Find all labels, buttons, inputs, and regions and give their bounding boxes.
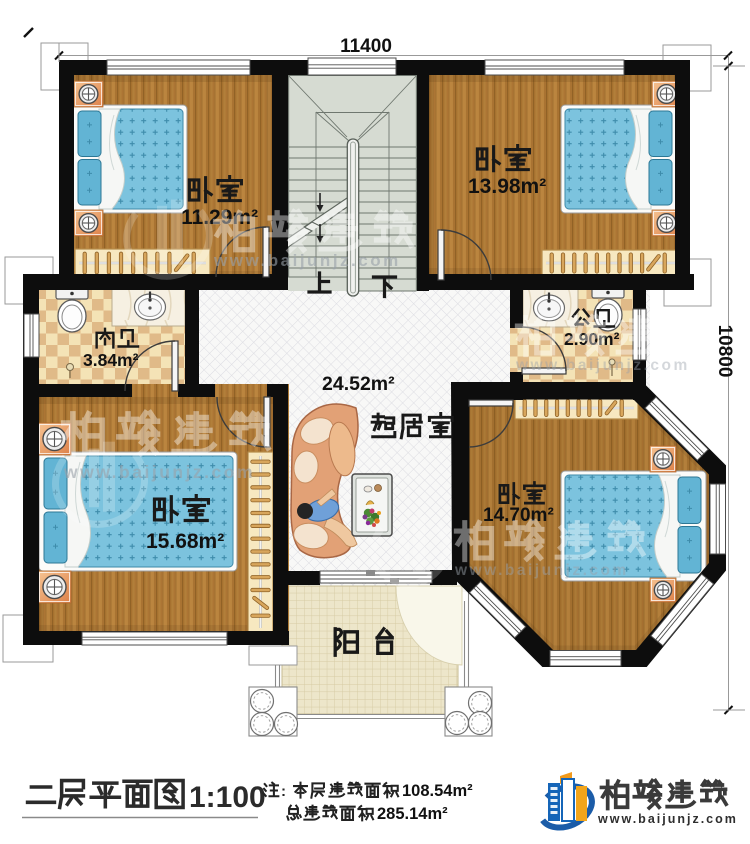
svg-text:1:100: 1:100 xyxy=(189,781,266,814)
svg-text:10800: 10800 xyxy=(714,325,735,378)
svg-text:15.68m²: 15.68m² xyxy=(146,530,224,553)
svg-text:285.14m²: 285.14m² xyxy=(377,805,448,823)
svg-text:14.70m²: 14.70m² xyxy=(483,505,554,526)
svg-text:www.baijunjz.com: www.baijunjz.com xyxy=(213,251,401,270)
svg-text:www.baijunjz.com: www.baijunjz.com xyxy=(597,812,738,826)
svg-text:108.54m²: 108.54m² xyxy=(402,782,473,800)
svg-text:24.52m²: 24.52m² xyxy=(322,373,395,395)
svg-text:13.98m²: 13.98m² xyxy=(468,175,546,198)
svg-text:www.baijunjz.com: www.baijunjz.com xyxy=(454,562,629,579)
svg-text:11400: 11400 xyxy=(340,36,392,57)
svg-text::: : xyxy=(281,783,286,800)
svg-text:3.84m²: 3.84m² xyxy=(83,350,139,370)
svg-text:www.baijunjz.com: www.baijunjz.com xyxy=(515,357,690,374)
svg-text:www.baijunjz.com: www.baijunjz.com xyxy=(63,462,255,482)
